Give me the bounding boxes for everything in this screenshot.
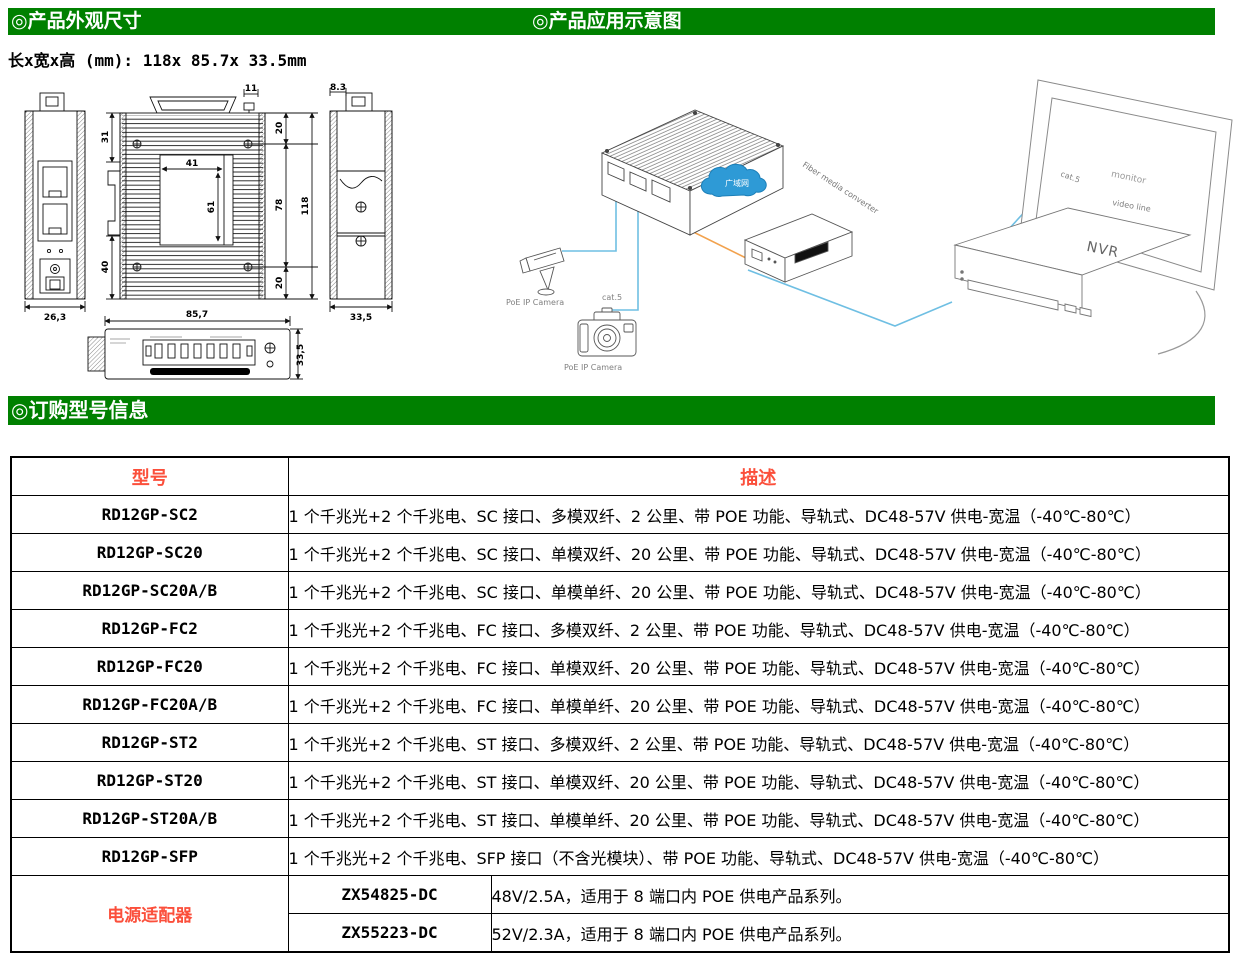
ordering-section-title: ◎订购型号信息 bbox=[11, 396, 148, 425]
desc-cell: 1 个千兆光+2 个千兆电、ST 接口、单模双纤、20 公里、带 POE 功能、… bbox=[288, 762, 1229, 800]
appearance-section-title: ◎产品外观尺寸 bbox=[11, 8, 142, 35]
adapter-model-cell: ZX55223-DC bbox=[288, 914, 491, 953]
model-cell: RD12GP-SC20 bbox=[11, 534, 288, 572]
rear-view-drawing: 11 41 61 31 bbox=[101, 84, 318, 299]
adapter-model-cell: ZX54825-DC bbox=[288, 876, 491, 914]
adapter-label-cell: 电源适配器 bbox=[11, 876, 288, 953]
table-row: RD12GP-SC20A/B 1 个千兆光+2 个千兆电、SC 接口、单模单纤、… bbox=[11, 572, 1229, 610]
model-cell: RD12GP-SC20A/B bbox=[11, 572, 288, 610]
cctv-camera-icon bbox=[520, 248, 564, 295]
dimension-drawings: 26,3 11 41 61 bbox=[0, 83, 500, 395]
model-cell: RD12GP-ST20A/B bbox=[11, 800, 288, 838]
column-header-model: 型号 bbox=[11, 457, 288, 496]
side-view-drawing: 8.3 33,5 bbox=[330, 83, 392, 323]
application-diagram: 广域网 Fiber media converter monitor NVR bbox=[490, 58, 1240, 390]
media-converter-icon bbox=[745, 214, 852, 282]
adapter-desc-cell: 48V/2.5A，适用于 8 端口内 POE 供电产品系列。 bbox=[491, 876, 1229, 914]
table-row: RD12GP-SC2 1 个千兆光+2 个千兆电、SC 接口、多模双纤、2 公里… bbox=[11, 496, 1229, 534]
desc-cell: 1 个千兆光+2 个千兆电、FC 接口、单模双纤、20 公里、带 POE 功能、… bbox=[288, 648, 1229, 686]
section-header-ordering: ◎订购型号信息 bbox=[8, 396, 1215, 425]
dim-plate-height: 61 bbox=[207, 201, 217, 214]
table-row: RD12GP-SC20 1 个千兆光+2 个千兆电、SC 接口、单模双纤、20 … bbox=[11, 534, 1229, 572]
table-row: RD12GP-FC2 1 个千兆光+2 个千兆电、FC 接口、多模双纤、2 公里… bbox=[11, 610, 1229, 648]
table-row: RD12GP-ST2 1 个千兆光+2 个千兆电、ST 接口、多模双纤、2 公里… bbox=[11, 724, 1229, 762]
model-cell: RD12GP-SFP bbox=[11, 838, 288, 876]
model-cell: RD12GP-FC20A/B bbox=[11, 686, 288, 724]
table-row: RD12GP-ST20A/B 1 个千兆光+2 个千兆电、ST 接口、单模单纤、… bbox=[11, 800, 1229, 838]
dim-upper-left: 31 bbox=[101, 131, 111, 144]
cat5-label-b: cat.5 bbox=[602, 293, 622, 302]
dim-bottom-inset: 20 bbox=[275, 277, 285, 290]
desc-cell: 1 个千兆光+2 个千兆电、FC 接口、多模双纤、2 公里、带 POE 功能、导… bbox=[288, 610, 1229, 648]
video-line-cable bbox=[1158, 291, 1205, 354]
desc-cell: 1 个千兆光+2 个千兆电、SC 接口、单模单纤、20 公里、带 POE 功能、… bbox=[288, 572, 1229, 610]
column-header-description: 描述 bbox=[288, 457, 1229, 496]
adapter-desc-cell: 52V/2.3A，适用于 8 端口内 POE 供电产品系列。 bbox=[491, 914, 1229, 953]
camera-b-label: PoE IP Camera bbox=[564, 363, 622, 372]
desc-cell: 1 个千兆光+2 个千兆电、FC 接口、单模单纤、20 公里、带 POE 功能、… bbox=[288, 686, 1229, 724]
table-row: RD12GP-FC20 1 个千兆光+2 个千兆电、FC 接口、单模双纤、20 … bbox=[11, 648, 1229, 686]
table-row-adapter: 电源适配器 ZX54825-DC 48V/2.5A，适用于 8 端口内 POE … bbox=[11, 876, 1229, 914]
model-cell: RD12GP-ST20 bbox=[11, 762, 288, 800]
dim-plate-width: 41 bbox=[186, 159, 199, 169]
desc-cell: 1 个千兆光+2 个千兆电、ST 接口、多模双纤、2 公里、带 POE 功能、导… bbox=[288, 724, 1229, 762]
model-cell: RD12GP-FC20 bbox=[11, 648, 288, 686]
dim-lower-left: 40 bbox=[101, 261, 111, 274]
dim-body-mid: 78 bbox=[275, 199, 285, 212]
spec-sheet: ◎产品外观尺寸 ◎产品应用示意图 长x宽x高 (mm): 118x 85.7x … bbox=[0, 0, 1240, 963]
dim-top-inset: 20 bbox=[275, 122, 285, 135]
model-cell: RD12GP-FC2 bbox=[11, 610, 288, 648]
converter-label: Fiber media converter bbox=[801, 160, 880, 216]
dim-side-tab: 8.3 bbox=[330, 83, 346, 93]
table-row: RD12GP-SFP 1 个千兆光+2 个千兆电、SFP 接口（不含光模块）、带… bbox=[11, 838, 1229, 876]
desc-cell: 1 个千兆光+2 个千兆电、SFP 接口（不含光模块）、带 POE 功能、导轨式… bbox=[288, 838, 1229, 876]
desc-cell: 1 个千兆光+2 个千兆电、ST 接口、单模单纤、20 公里、带 POE 功能、… bbox=[288, 800, 1229, 838]
dim-tab-width: 11 bbox=[245, 84, 258, 94]
table-row: RD12GP-FC20A/B 1 个千兆光+2 个千兆电、FC 接口、单模单纤、… bbox=[11, 686, 1229, 724]
overall-size-text: 长x宽x高 (mm): 118x 85.7x 33.5mm bbox=[8, 47, 306, 71]
cloud-label: 广域网 bbox=[725, 178, 749, 188]
section-header-top: ◎产品外观尺寸 ◎产品应用示意图 bbox=[8, 8, 1215, 35]
desc-cell: 1 个千兆光+2 个千兆电、SC 接口、多模双纤、2 公里、带 POE 功能、导… bbox=[288, 496, 1229, 534]
model-cell: RD12GP-ST2 bbox=[11, 724, 288, 762]
dim-total-height: 118 bbox=[301, 197, 311, 216]
table-header-row: 型号 描述 bbox=[11, 457, 1229, 496]
application-section-title: ◎产品应用示意图 bbox=[532, 8, 682, 35]
front-view-drawing: 26,3 bbox=[25, 93, 85, 323]
table-row: RD12GP-ST20 1 个千兆光+2 个千兆电、ST 接口、单模双纤、20 … bbox=[11, 762, 1229, 800]
ordering-table: 型号 描述 RD12GP-SC2 1 个千兆光+2 个千兆电、SC 接口、多模双… bbox=[10, 456, 1230, 953]
model-cell: RD12GP-SC2 bbox=[11, 496, 288, 534]
desc-cell: 1 个千兆光+2 个千兆电、SC 接口、单模双纤、20 公里、带 POE 功能、… bbox=[288, 534, 1229, 572]
dim-side-depth: 33,5 bbox=[350, 313, 372, 323]
dslr-camera-icon bbox=[578, 308, 636, 356]
dim-bottom-depth: 33,5 bbox=[296, 344, 306, 366]
dim-front-width: 26,3 bbox=[44, 313, 66, 323]
dim-bottom-width: 85,7 bbox=[186, 310, 208, 320]
bottom-view-drawing: 85,7 33,5 bbox=[88, 310, 306, 379]
camera-a-label: PoE IP Camera bbox=[506, 298, 564, 307]
